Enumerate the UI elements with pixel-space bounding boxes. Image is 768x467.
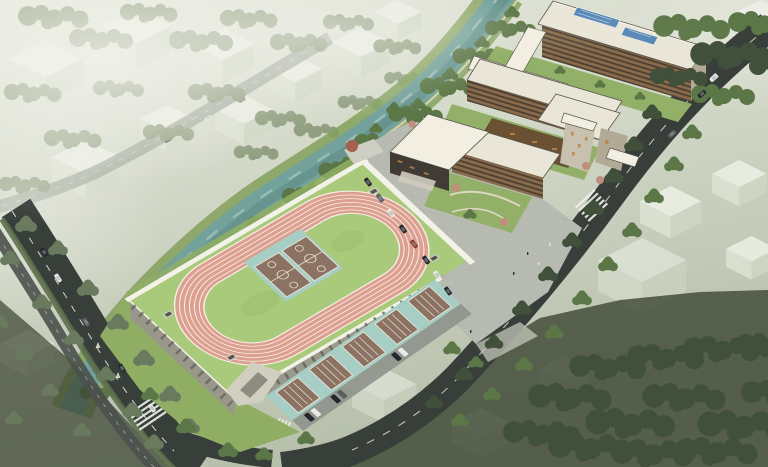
campus-rendering-svg (0, 0, 768, 467)
window-lit (605, 140, 609, 144)
blossom-tree (409, 121, 416, 128)
window-lit (532, 141, 537, 143)
blossom-tree (500, 218, 508, 226)
blossom-tree (452, 184, 460, 192)
blossom-tree (582, 162, 590, 170)
blossom-tree (596, 176, 604, 184)
window-lit (510, 133, 515, 135)
red-accent-tree (346, 140, 358, 152)
window-lit (552, 148, 557, 150)
campus-rendering (0, 0, 768, 467)
